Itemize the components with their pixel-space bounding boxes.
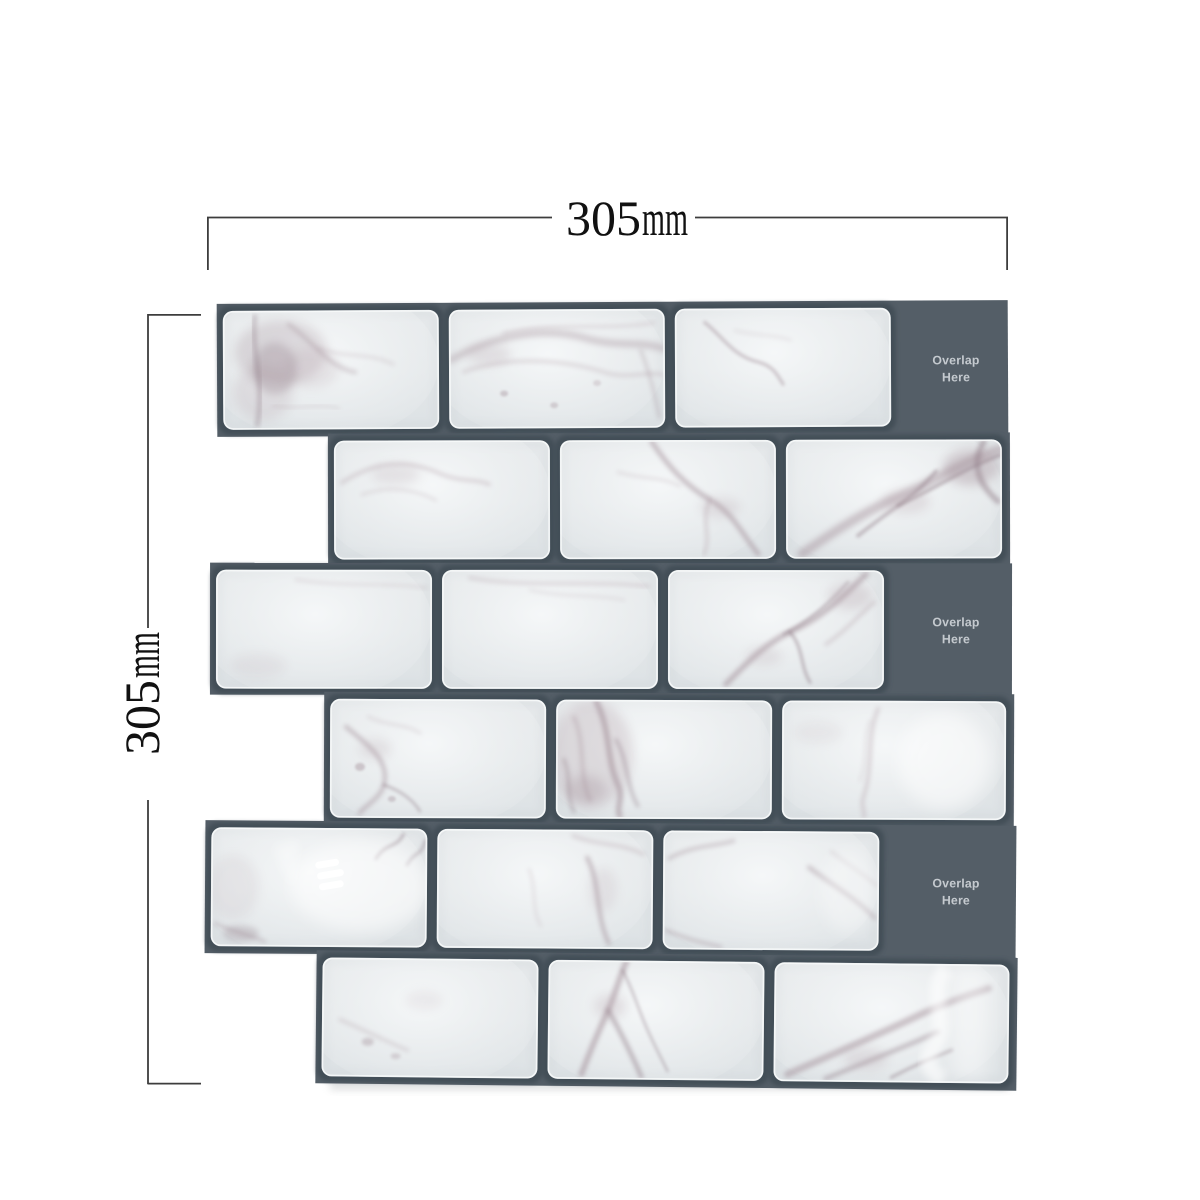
svg-text:Here: Here xyxy=(942,370,970,384)
svg-text:305: 305 xyxy=(566,190,641,246)
svg-text:Here: Here xyxy=(942,632,970,646)
svg-text:mm: mm xyxy=(642,190,688,246)
svg-text:Overlap: Overlap xyxy=(932,876,979,890)
svg-text:305: 305 xyxy=(114,680,170,755)
svg-text:mm: mm xyxy=(114,632,170,678)
svg-text:Overlap: Overlap xyxy=(932,353,979,367)
svg-text:Overlap: Overlap xyxy=(932,615,979,629)
svg-text:Here: Here xyxy=(942,893,970,907)
